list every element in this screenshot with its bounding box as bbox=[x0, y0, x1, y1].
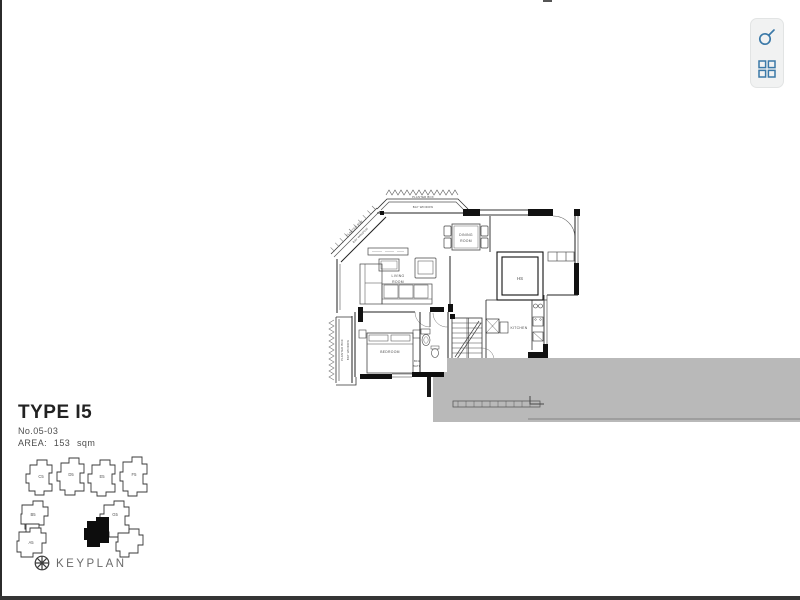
entry-door-arc bbox=[553, 216, 575, 238]
area-label: AREA: 153 sqm bbox=[18, 438, 95, 448]
wall-left bbox=[337, 259, 340, 313]
room-label-kitchen: KITCHEN bbox=[511, 326, 528, 330]
keyplan-caption: KEYPLAN bbox=[56, 558, 127, 570]
title-block: TYPE I5 No.05-03 AREA: 153 sqm bbox=[18, 402, 95, 448]
page-title: TYPE I5 bbox=[18, 402, 95, 424]
living-area bbox=[360, 248, 453, 312]
annotation-bay-window-top: BAY WINDOW bbox=[413, 205, 434, 209]
keyplan: C5 D5 E5 F5 B5 A5 G5 KEYPLAN bbox=[14, 455, 154, 575]
keyplan-label-e5: E5 bbox=[99, 474, 105, 479]
bay-window-top bbox=[377, 190, 469, 216]
plan-lower-details bbox=[400, 350, 800, 430]
keyplan-block-g5-ext bbox=[116, 529, 143, 557]
zoom-button[interactable] bbox=[752, 22, 782, 52]
page-edge-left bbox=[0, 0, 2, 600]
wall-bar-bath-bottom bbox=[412, 372, 444, 377]
keyplan-label-d5: D5 bbox=[68, 472, 74, 477]
annotation-planter-box-left: PLANTER BOX bbox=[340, 339, 344, 361]
page-edge-bottom bbox=[0, 596, 800, 600]
room-label-dining-2: ROOM bbox=[460, 239, 472, 243]
terrace-railing bbox=[453, 396, 544, 407]
room-label-living-2: ROOM bbox=[392, 280, 404, 284]
toolbar bbox=[750, 18, 784, 88]
room-label-hs: HS bbox=[517, 276, 523, 281]
keyplan-label-g5: G5 bbox=[112, 512, 118, 517]
scan-artifact-mark bbox=[543, 0, 552, 2]
bath-door-arc bbox=[433, 313, 448, 327]
magnifier-icon bbox=[757, 27, 777, 47]
grid-button[interactable] bbox=[752, 54, 782, 84]
annotation-planter-box-top: PLANTER BOX bbox=[412, 195, 434, 199]
room-label-bedroom: BEDROOM bbox=[380, 350, 400, 354]
wall-top-entry bbox=[463, 209, 580, 238]
keyplan-label-f5: F5 bbox=[132, 472, 138, 477]
keyplan-highlighted-unit bbox=[84, 517, 109, 547]
planter-zigzag-left bbox=[329, 320, 334, 380]
wall-stem bbox=[427, 377, 431, 397]
room-label-dining-1: DINING bbox=[459, 233, 473, 237]
annotation-bay-window-left: BAY WINDOW bbox=[346, 340, 350, 361]
compass-icon bbox=[35, 556, 49, 570]
unit-number: No.05-03 bbox=[18, 426, 95, 436]
bedroom-door-arc bbox=[415, 312, 430, 327]
grid-icon bbox=[757, 59, 777, 79]
entry-cabinet bbox=[548, 252, 574, 261]
room-label-living-1: LIVING bbox=[392, 274, 405, 278]
keyplan-label-b5: B5 bbox=[30, 512, 36, 517]
keyplan-label-a5: A5 bbox=[28, 540, 34, 545]
keyplan-label-c5: C5 bbox=[38, 474, 44, 479]
